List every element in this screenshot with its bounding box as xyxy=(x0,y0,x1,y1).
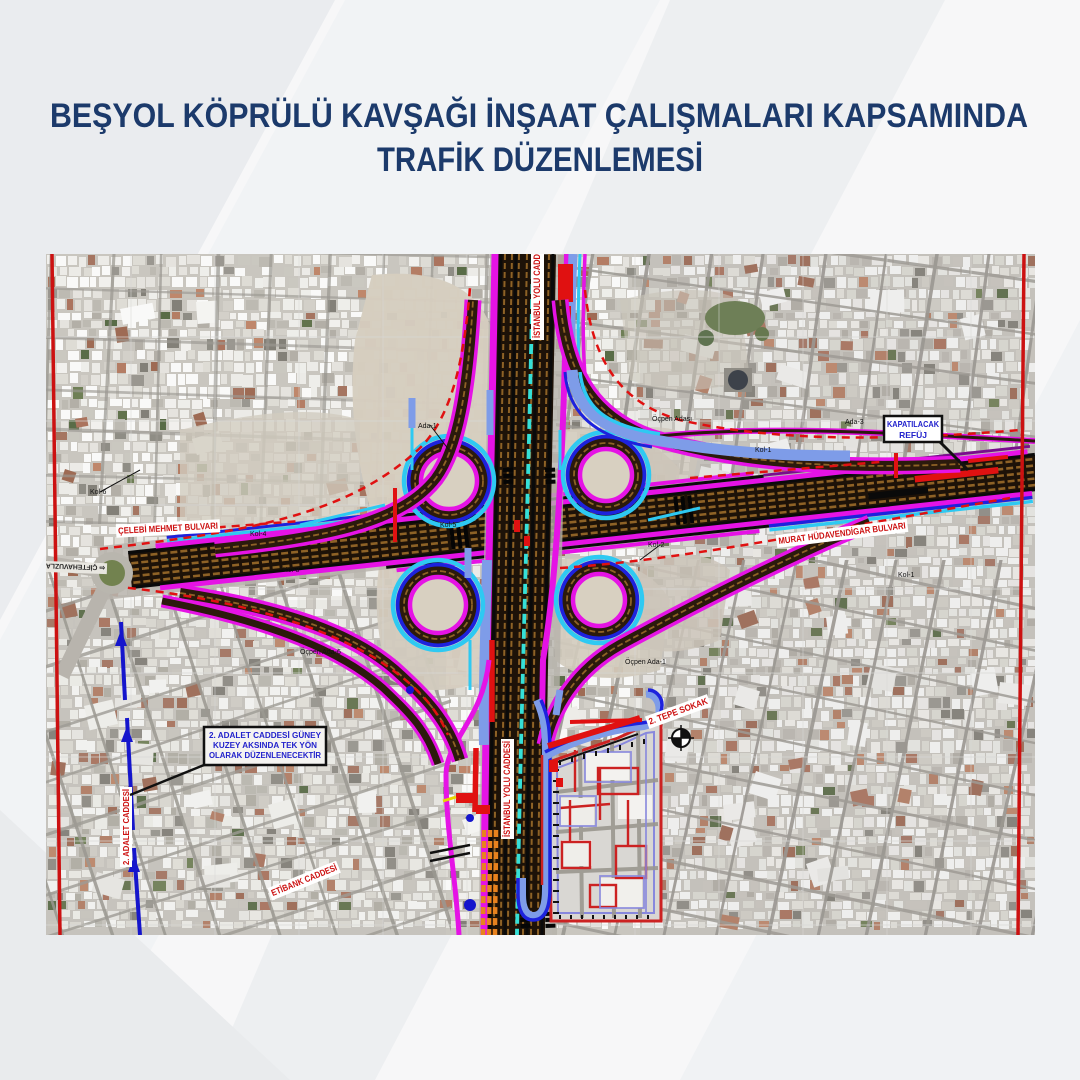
svg-text:TRAFİK DÜZENLEMESİ: TRAFİK DÜZENLEMESİ xyxy=(377,141,703,179)
svg-text:BEŞYOL KÖPRÜLÜ KAVŞAĞI İNŞAAT: BEŞYOL KÖPRÜLÜ KAVŞAĞI İNŞAAT ÇALIŞMALAR… xyxy=(50,97,1028,135)
